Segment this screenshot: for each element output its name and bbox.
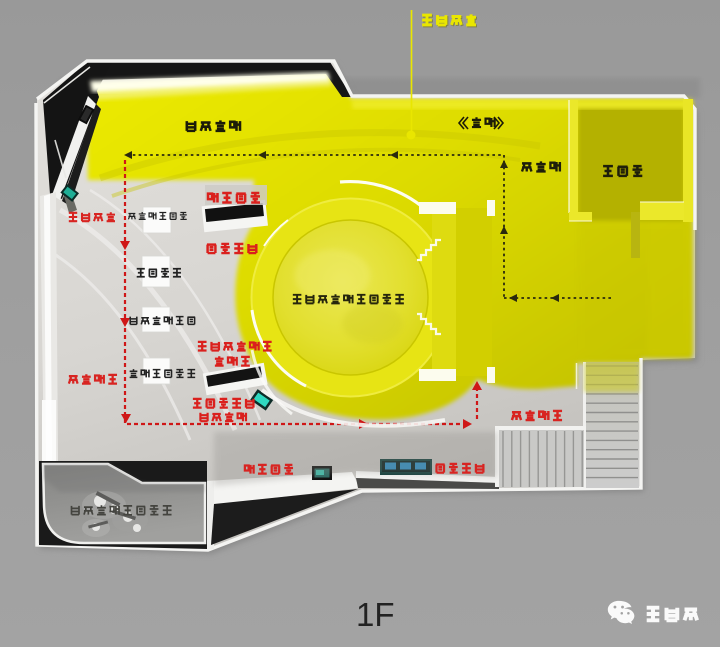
svg-text:1F: 1F xyxy=(356,596,395,633)
